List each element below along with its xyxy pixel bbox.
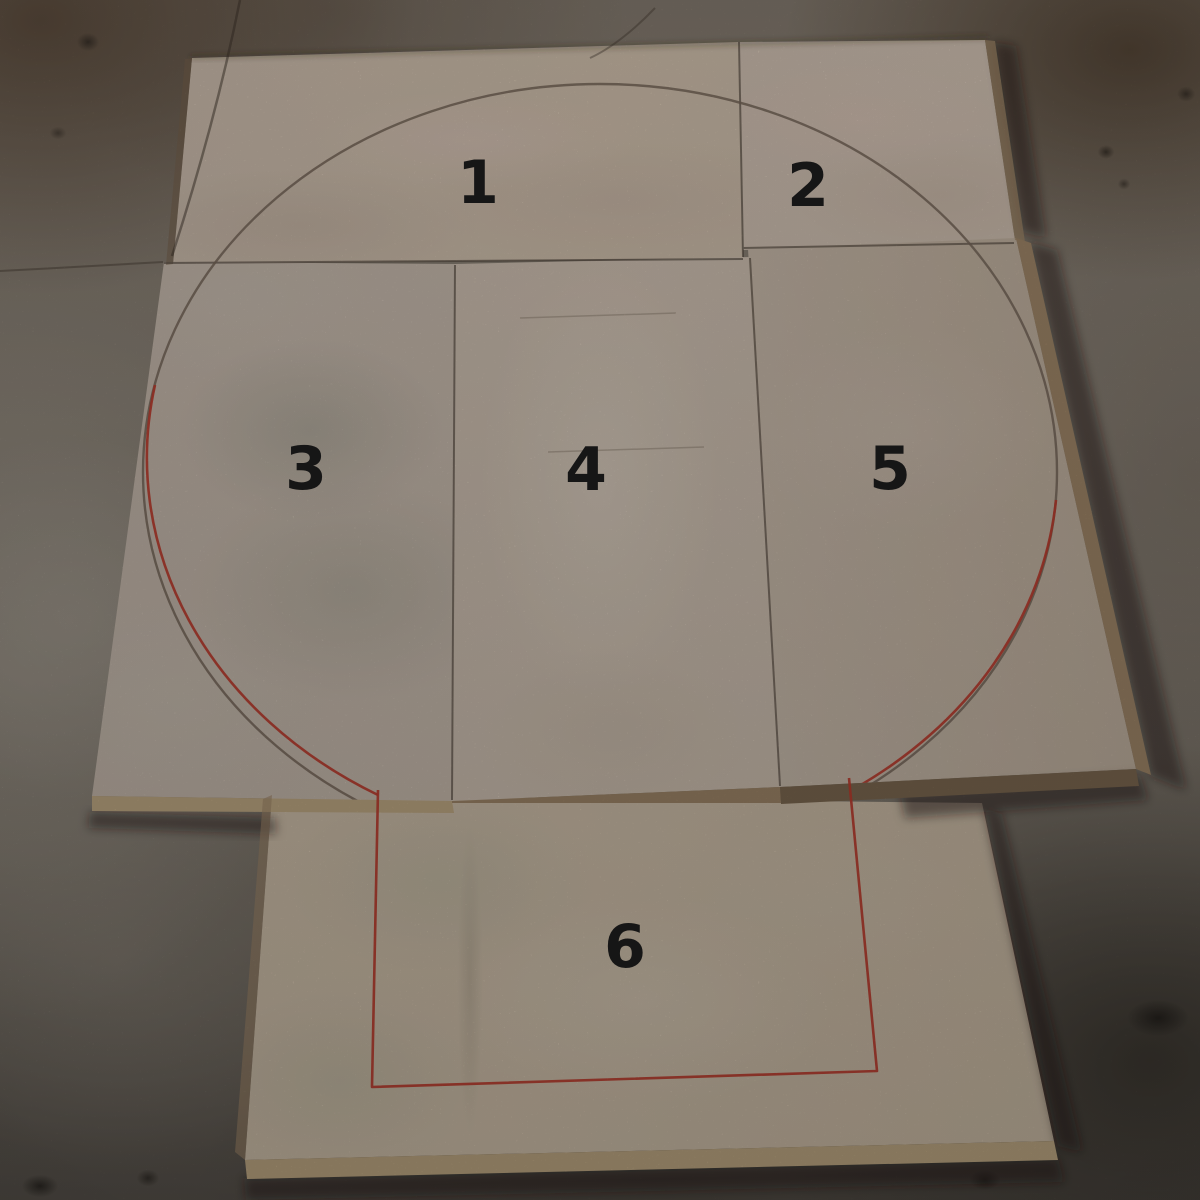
grain-overlay [0,0,1200,1200]
workshop-photo: 1 2 3 4 5 6 [0,0,1200,1200]
panel-1-label: 1 [457,153,499,213]
panel-5-label: 5 [869,439,911,499]
panel-3-label: 3 [285,439,327,499]
markings-overlay [0,0,1200,1200]
panel-6-label: 6 [604,917,646,977]
panel-4-label: 4 [565,440,607,500]
panel-2-label: 2 [787,156,829,216]
